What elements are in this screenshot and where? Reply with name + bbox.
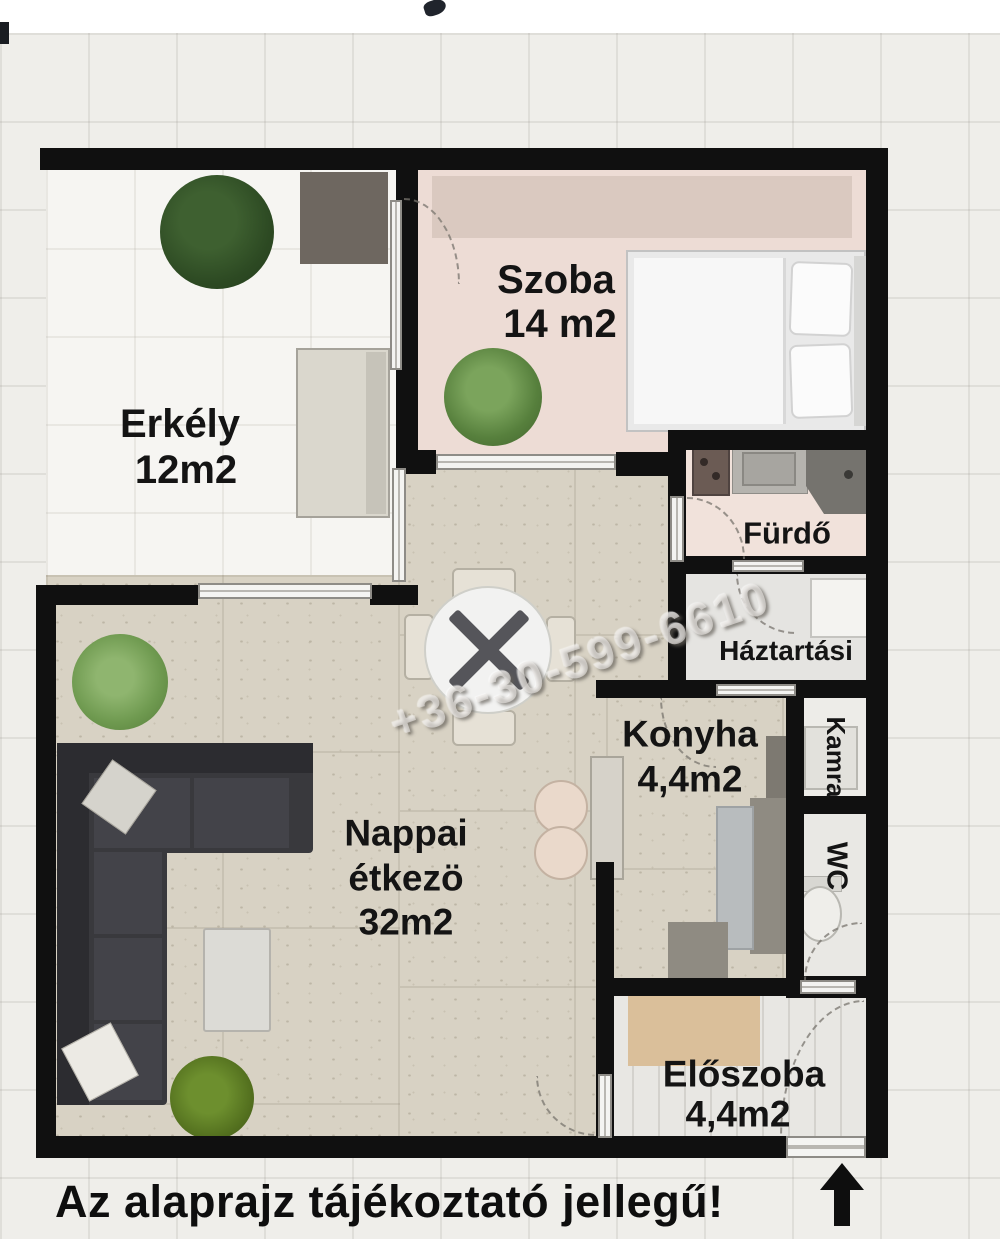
north-arrow-icon (818, 1163, 866, 1229)
bedroom-sliding-door (436, 454, 616, 470)
wall-top (40, 148, 888, 170)
room-area-szoba: 14 m2 (503, 304, 616, 344)
sofa-back-top (57, 743, 313, 773)
bedroom-rug (432, 176, 852, 238)
wall-bottom (36, 1136, 888, 1158)
top-white-band (0, 0, 1000, 33)
washer-knob-1 (700, 458, 708, 466)
floor-plant (170, 1056, 254, 1140)
shower-drain (844, 470, 853, 479)
balcony-bench-back (366, 352, 386, 514)
bed-pillow-top (789, 261, 854, 337)
wall-left (36, 585, 56, 1158)
living-plant (72, 634, 168, 730)
wc-door (800, 980, 856, 994)
bedroom-plant (444, 348, 542, 446)
balcony-parked-door (392, 468, 406, 582)
washer-knob-2 (712, 472, 720, 480)
room-area-nappali: 32m2 (359, 904, 454, 941)
bed-pillow-bottom (789, 343, 854, 419)
room-label-erkely: Erkély (120, 404, 240, 444)
room-label-konyha: Konyha (622, 716, 758, 753)
balcony-table (300, 172, 388, 264)
wall-living-top-left (36, 585, 198, 605)
hallway-living-door (598, 1074, 612, 1138)
bed-headboard (854, 256, 866, 426)
entrance-door (786, 1136, 866, 1158)
wall-bathroom-top (672, 430, 868, 450)
kitchen-utility-door (716, 684, 796, 696)
wall-right (866, 148, 888, 1158)
room-label-kamra: Kamra (823, 717, 849, 798)
room-area-konyha: 4,4m2 (638, 761, 743, 798)
room-label-eloszoba: Előszoba (663, 1056, 825, 1093)
wall-pantry-wc-divider (786, 796, 866, 814)
sofa-cushion-3 (94, 852, 162, 934)
room-label-wc: WC (822, 842, 851, 890)
bed-duvet (634, 258, 786, 424)
balcony-bedroom-door (390, 200, 402, 370)
room-label-haztartasi: Háztartási (719, 637, 853, 665)
north-arrow-stem (834, 1188, 850, 1226)
sofa-cushion-4 (94, 938, 162, 1020)
wall-living-top-right (370, 585, 418, 605)
sofa-cushion-2 (194, 778, 289, 848)
wall-kitchen-bottom (596, 978, 796, 996)
room-label-nappali-line1: Nappai (344, 815, 467, 852)
left-edge-mark (0, 22, 9, 44)
balcony-plant (160, 175, 274, 289)
bathroom-sink (742, 452, 796, 486)
room-area-eloszoba: 4,4m2 (686, 1096, 791, 1133)
room-label-nappali-line2: étkezö (348, 860, 463, 897)
coffee-table (203, 928, 271, 1032)
kitchen-stool-2 (534, 826, 588, 880)
bathroom-door (670, 496, 684, 562)
room-area-erkely: 12m2 (135, 450, 237, 490)
kitchen-counter-bottom (668, 922, 728, 986)
disclaimer-text: Az alaprajz tájékoztató jellegű! (55, 1176, 724, 1228)
wall-pantry-wc-left (786, 694, 804, 994)
balcony-sliding-door (198, 583, 372, 599)
washing-machine (692, 448, 730, 496)
floorplan-page: Erkély 12m2 Szoba 14 m2 Fürdő Háztartási… (0, 0, 1000, 1239)
room-label-szoba: Szoba (497, 260, 615, 300)
north-arrow-head (820, 1163, 864, 1190)
